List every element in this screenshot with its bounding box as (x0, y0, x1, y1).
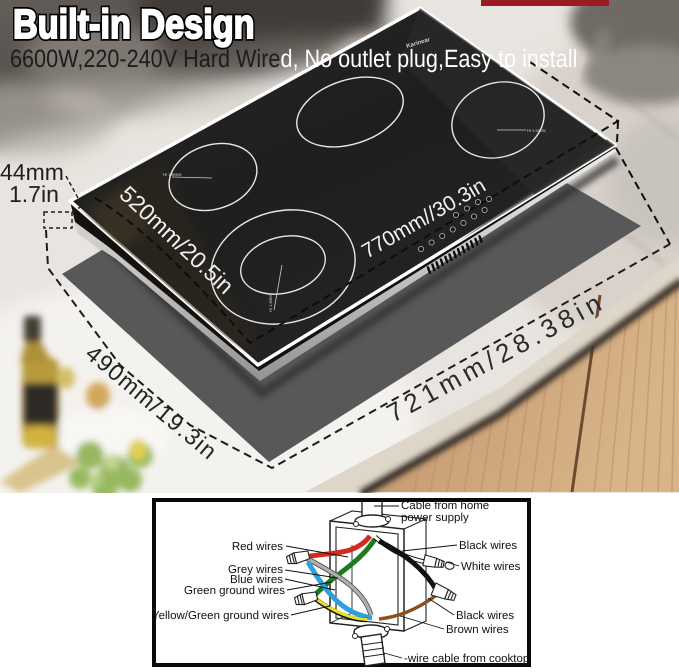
svg-text:Yellow/Green ground wires: Yellow/Green ground wires (152, 610, 289, 622)
svg-text:White wires: White wires (461, 561, 521, 573)
svg-text:-wire cable from cooktop: -wire cable from cooktop (404, 653, 529, 665)
svg-text:Black wires: Black wires (459, 540, 517, 552)
svg-text:Black wires: Black wires (456, 610, 514, 622)
svg-text:6600W,220-240V Hard Wired, No: 6600W,220-240V Hard Wired, No outlet plu… (10, 45, 577, 73)
svg-text:Cable from home: Cable from home (401, 500, 489, 512)
svg-text:Red wires: Red wires (232, 541, 283, 553)
svg-text:Green ground wires: Green ground wires (184, 585, 285, 597)
svg-text:1.7in: 1.7in (9, 181, 59, 207)
svg-text:power supply: power supply (401, 512, 469, 524)
svg-text:HI 4.50kW: HI 4.50kW (527, 128, 546, 133)
svg-text:Brown wires: Brown wires (446, 624, 509, 636)
svg-text:HI 1.80kW: HI 1.80kW (163, 172, 182, 177)
svg-text:HI 1.80kW: HI 1.80kW (268, 293, 273, 312)
svg-text:Built-in Design: Built-in Design (13, 1, 255, 47)
